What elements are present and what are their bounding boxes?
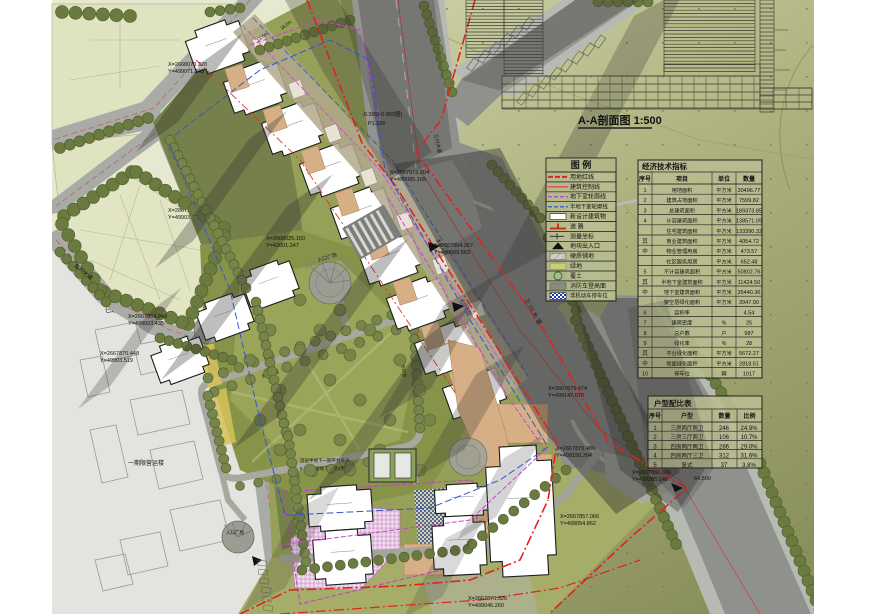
svg-text:30496.77: 30496.77 bbox=[738, 188, 761, 194]
svg-text:37: 37 bbox=[721, 463, 728, 469]
svg-text:X=2667879.474: X=2667879.474 bbox=[548, 386, 587, 392]
svg-text:3.8%: 3.8% bbox=[742, 463, 756, 469]
svg-text:序号: 序号 bbox=[638, 175, 651, 183]
svg-text:总户数: 总户数 bbox=[674, 329, 690, 337]
svg-text:平方米: 平方米 bbox=[716, 359, 732, 367]
svg-text:-0.300(-0.900围): -0.300(-0.900围) bbox=[362, 111, 403, 118]
svg-text:50802.76: 50802.76 bbox=[738, 270, 761, 276]
svg-text:经济技术指标: 经济技术指标 bbox=[642, 161, 687, 171]
svg-text:2818.51: 2818.51 bbox=[739, 361, 759, 367]
svg-text:Y=499071.243: Y=499071.243 bbox=[168, 69, 204, 75]
svg-text:189373.85: 189373.85 bbox=[736, 208, 762, 214]
svg-text:用地面积: 用地面积 bbox=[672, 186, 693, 194]
svg-text:2: 2 bbox=[643, 198, 646, 204]
svg-text:3: 3 bbox=[643, 208, 646, 214]
svg-text:建筑占地面积: 建筑占地面积 bbox=[666, 196, 697, 204]
svg-text:建筑控制线: 建筑控制线 bbox=[570, 183, 600, 191]
svg-text:A-A剖面图 1:500: A-A剖面图 1:500 bbox=[578, 113, 662, 127]
svg-text:138571.09: 138571.09 bbox=[736, 219, 762, 225]
svg-text:用地红线: 用地红线 bbox=[570, 173, 594, 181]
svg-text:中: 中 bbox=[642, 247, 648, 255]
svg-text:平方米: 平方米 bbox=[716, 278, 732, 286]
svg-text:Y=499054.862: Y=499054.862 bbox=[560, 521, 596, 527]
svg-text:项目: 项目 bbox=[676, 175, 688, 183]
svg-text:5672.27: 5672.27 bbox=[739, 351, 759, 357]
svg-text:64.500: 64.500 bbox=[694, 476, 711, 482]
svg-text:覆土: 覆土 bbox=[570, 272, 582, 280]
svg-text:4054.72: 4054.72 bbox=[739, 239, 759, 245]
svg-text:平方米: 平方米 bbox=[716, 206, 732, 214]
svg-text:X=2667884.949: X=2667884.949 bbox=[128, 314, 167, 320]
svg-text:建筑密度: 建筑密度 bbox=[672, 319, 693, 327]
svg-text:Y=499069.563: Y=499069.563 bbox=[434, 250, 470, 256]
svg-text:户: 户 bbox=[721, 329, 726, 337]
svg-text:%: % bbox=[722, 321, 727, 327]
svg-text:物业管理用房: 物业管理用房 bbox=[666, 247, 697, 255]
svg-text:其: 其 bbox=[642, 278, 648, 286]
svg-text:X=2668073.220: X=2668073.220 bbox=[168, 62, 207, 68]
svg-text:X=2667860.680: X=2667860.680 bbox=[632, 470, 671, 476]
svg-text:28: 28 bbox=[746, 341, 752, 347]
svg-text:其: 其 bbox=[642, 237, 648, 245]
svg-text:数量: 数量 bbox=[718, 412, 730, 420]
svg-text:平方米: 平方米 bbox=[716, 237, 732, 245]
svg-text:入口广场: 入口广场 bbox=[226, 529, 244, 536]
svg-text:987: 987 bbox=[744, 331, 753, 337]
svg-text:图 例: 图 例 bbox=[571, 159, 592, 170]
svg-text:平方米: 平方米 bbox=[716, 196, 732, 204]
svg-text:计容建筑面积: 计容建筑面积 bbox=[666, 217, 697, 225]
svg-text:Y=42001.247: Y=42001.247 bbox=[266, 243, 299, 249]
svg-text:消防车登高面: 消防车登高面 bbox=[570, 282, 606, 290]
svg-text:4.54: 4.54 bbox=[744, 310, 755, 316]
svg-text:测量坐标: 测量坐标 bbox=[570, 232, 594, 240]
svg-text:社区服务用房: 社区服务用房 bbox=[666, 257, 697, 265]
svg-text:4: 4 bbox=[643, 219, 646, 225]
svg-text:652.48: 652.48 bbox=[741, 259, 758, 265]
svg-text:地下室建筑面积: 地下室建筑面积 bbox=[664, 288, 700, 296]
svg-text:非机动车停车位: 非机动车停车位 bbox=[570, 292, 608, 300]
svg-text:半地下室轮廓线: 半地下室轮廓线 bbox=[570, 203, 608, 211]
svg-text:地块出入口: 地块出入口 bbox=[570, 242, 600, 250]
svg-text:容积率: 容积率 bbox=[674, 308, 690, 316]
svg-text:7599.82: 7599.82 bbox=[739, 198, 759, 204]
svg-text:Y=499147.070: Y=499147.070 bbox=[548, 393, 584, 399]
svg-text:比例: 比例 bbox=[743, 412, 755, 420]
svg-text:平方米: 平方米 bbox=[716, 298, 732, 306]
svg-text:1017: 1017 bbox=[743, 372, 755, 378]
svg-text:X=2667857.066: X=2667857.066 bbox=[560, 514, 599, 520]
svg-text:133390.32: 133390.32 bbox=[736, 229, 762, 235]
svg-text:商业建筑面积: 商业建筑面积 bbox=[666, 237, 697, 245]
svg-text:%: % bbox=[722, 341, 727, 347]
svg-text:Y=49903.519: Y=49903.519 bbox=[100, 358, 133, 364]
svg-text:473.57: 473.57 bbox=[741, 249, 758, 255]
svg-text:X=2667972.204: X=2667972.204 bbox=[390, 170, 429, 176]
svg-text:X=2667870.326: X=2667870.326 bbox=[468, 596, 507, 602]
svg-text:35440.36: 35440.36 bbox=[738, 290, 761, 296]
svg-text:Y=499085.165: Y=499085.165 bbox=[390, 177, 426, 183]
svg-text:5: 5 bbox=[643, 270, 646, 276]
svg-text:不计容建筑面积: 不计容建筑面积 bbox=[664, 268, 700, 276]
svg-text:X=2667879.480: X=2667879.480 bbox=[556, 446, 595, 452]
svg-text:绿地: 绿地 bbox=[570, 262, 582, 270]
svg-text:X=2667870.448: X=2667870.448 bbox=[100, 351, 139, 357]
svg-text:11424.50: 11424.50 bbox=[738, 280, 761, 286]
svg-text:辆: 辆 bbox=[721, 370, 726, 378]
svg-text:平方米: 平方米 bbox=[716, 186, 732, 194]
svg-text:总建筑面积: 总建筑面积 bbox=[669, 206, 695, 214]
svg-text:平方米: 平方米 bbox=[716, 288, 732, 296]
svg-text:一期限营运楼: 一期限营运楼 bbox=[128, 459, 164, 467]
svg-text:道 路: 道 路 bbox=[570, 222, 584, 230]
svg-text:地下室轮廓线: 地下室轮廓线 bbox=[570, 193, 606, 201]
svg-text:Y=499150.304: Y=499150.304 bbox=[556, 453, 592, 459]
svg-text:X=2668025.150: X=2668025.150 bbox=[266, 236, 305, 242]
svg-text:平方米: 平方米 bbox=[716, 257, 732, 265]
svg-text:平方米: 平方米 bbox=[716, 217, 732, 225]
svg-text:25: 25 bbox=[746, 321, 752, 327]
svg-text:P1.100: P1.100 bbox=[368, 121, 385, 127]
svg-text:住宅建筑面积: 住宅建筑面积 bbox=[666, 227, 697, 235]
svg-text:平方米: 平方米 bbox=[716, 227, 732, 235]
svg-text:1: 1 bbox=[643, 188, 646, 194]
svg-text:半地下室建筑面积: 半地下室建筑面积 bbox=[661, 278, 703, 286]
svg-text:3947.90: 3947.90 bbox=[739, 300, 759, 306]
svg-text:硬质铺地: 硬质铺地 bbox=[570, 252, 594, 260]
svg-text:平方米: 平方米 bbox=[716, 349, 732, 357]
svg-text:数量: 数量 bbox=[743, 175, 755, 183]
svg-text:中: 中 bbox=[642, 288, 648, 296]
svg-text:新设计建筑物: 新设计建筑物 bbox=[570, 213, 606, 221]
svg-text:Y=499205.140: Y=499205.140 bbox=[632, 477, 668, 483]
svg-text:架空层绿化面积: 架空层绿化面积 bbox=[664, 298, 700, 306]
svg-text:Y=499003.435: Y=499003.435 bbox=[128, 321, 164, 327]
svg-text:平方米: 平方米 bbox=[716, 247, 732, 255]
svg-text:平方米: 平方米 bbox=[716, 268, 732, 276]
svg-text:Y=499046.260: Y=499046.260 bbox=[468, 603, 504, 609]
svg-text:单位: 单位 bbox=[718, 175, 730, 183]
